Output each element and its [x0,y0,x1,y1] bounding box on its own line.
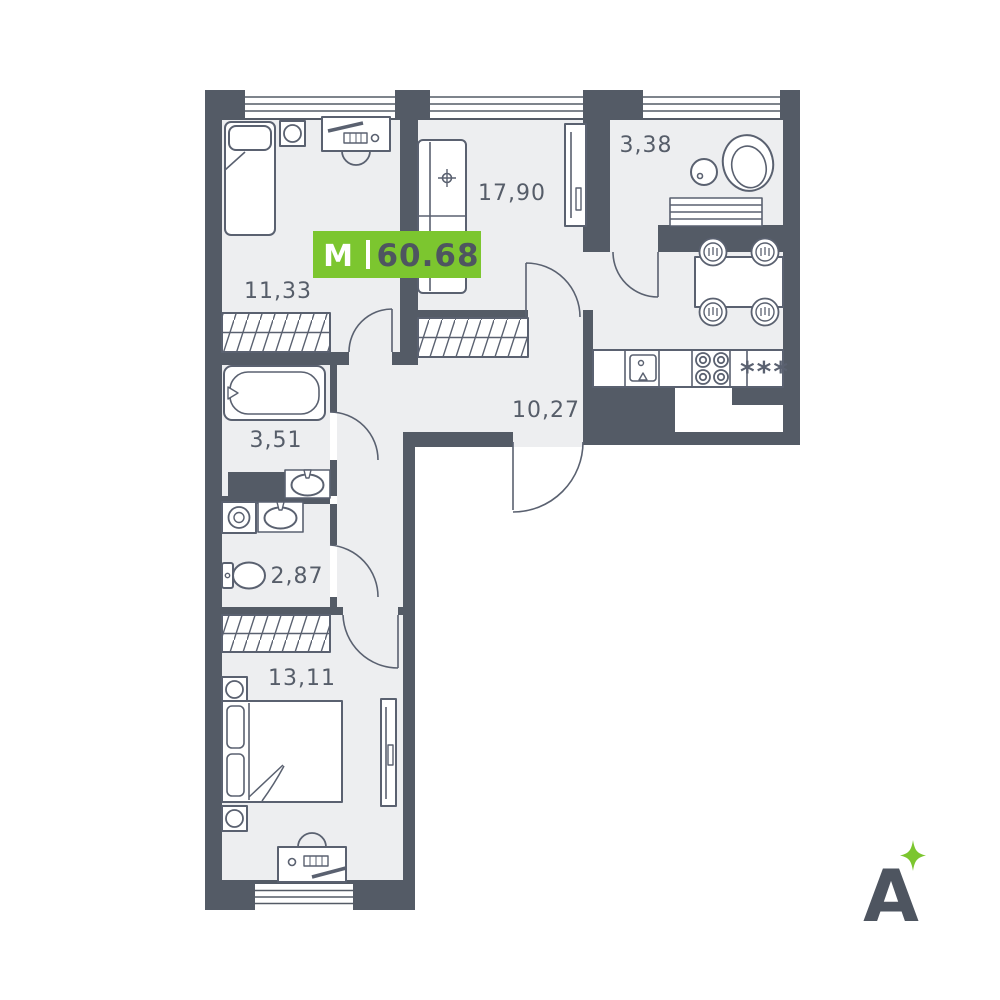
vanity-unit-icon [228,472,285,497]
floorplan-svg: *** [0,0,1000,1000]
wardrobe-icon [222,313,330,352]
room-label-wc: 2,87 [271,564,324,589]
bathtub-icon [224,366,325,420]
room-label-bedroom-bottom: 13,11 [268,666,336,691]
chair-plate-icon [700,299,727,326]
floor-corridor [337,352,403,615]
window-bedroom-top [245,90,395,118]
nightstand-lamp-icon [222,806,247,831]
drain-icon [691,159,717,185]
chair-plate-icon [752,239,779,266]
wall-wc-corridor-a [330,504,337,545]
area-badge: M 60.68 [313,231,481,278]
wall-left [205,90,222,910]
badge-separator [366,240,370,269]
logo-letter: A [863,854,919,938]
shower-shelf-icon [670,198,762,226]
nightstand-lamp-icon [280,121,305,146]
wall-bathmid-corridor-a [330,365,337,412]
floorplan-image: *** [0,0,1000,1000]
window-bathroom-top [643,90,780,118]
room-label-living: 17,90 [478,181,546,206]
window-bedroom-bottom [255,884,353,910]
hall-wardrobe-icon [418,318,528,357]
wall-hallway-bottom [403,432,513,447]
nightstand-lamp-icon [222,677,247,702]
fridge-icon: *** [740,355,790,388]
room-label-bedroom-top: 11,33 [244,279,312,304]
sink-icon [630,355,656,381]
wall-wc-corridor-b [330,597,337,607]
washing-machine-icon [222,502,256,533]
room-label-bathroom-top: 3,38 [620,133,673,158]
developer-logo: A [863,840,926,938]
wall-bedroom-bath [222,352,349,365]
double-bed-icon [222,701,342,802]
wall-bathmid-corridor-b [330,460,337,496]
room-label-bathroom-mid: 3,51 [250,428,303,453]
wall-notch-1 [675,387,732,432]
wall-notch-2 [732,405,783,432]
kitchen-counter-icon: *** [593,350,790,388]
chair-plate-icon [700,239,727,266]
tv-panel-icon [381,699,396,806]
wc-washbasin-icon [258,502,303,532]
wall-wc-bedroom [222,607,343,615]
chair-plate-icon [752,299,779,326]
wardrobe-icon [222,615,330,652]
wall-living-bathtop [583,120,610,252]
room-label-hallway: 10,27 [512,398,580,423]
window-living [430,90,583,118]
wall-column-right [403,432,415,910]
wall-living-hall [400,310,528,318]
tv-panel-icon [565,124,586,226]
toilet-icon [222,563,265,589]
single-bed-icon [225,122,275,235]
wall-bedroom-door-jamb [392,352,400,365]
wall-hall-kitchen [583,310,593,432]
badge-type-label: M [323,239,353,274]
badge-area-value: 60.68 [376,238,479,274]
washbasin-icon [285,470,330,498]
wall-bedroom2-door-jamb [398,607,403,615]
